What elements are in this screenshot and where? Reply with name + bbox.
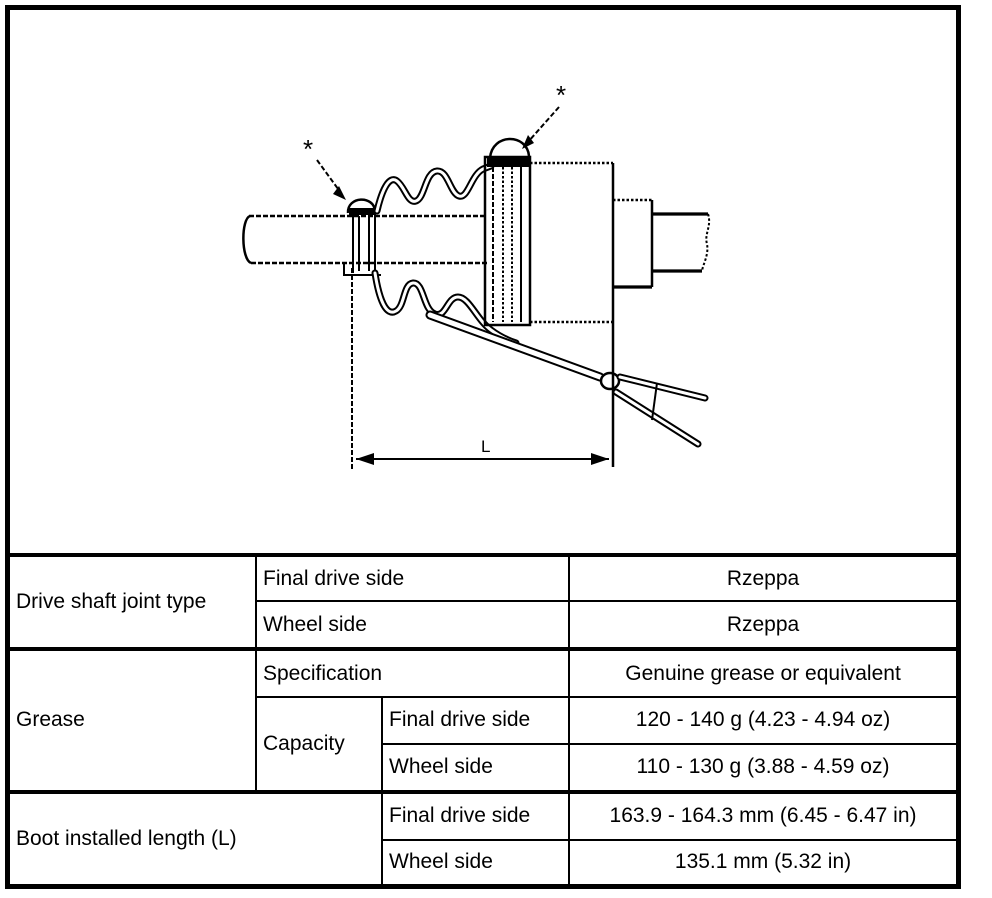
- drive-shaft-boot-illustration: * * L: [10, 10, 956, 553]
- boot-band-tool: [430, 315, 705, 444]
- boot-large-end: [485, 157, 530, 325]
- boot-upper-bellows: [377, 166, 491, 211]
- table-row: Drive shaft joint type Final drive side …: [10, 557, 956, 601]
- axle-shaft: [243, 216, 487, 263]
- drive-shaft-diagram: * * L: [10, 10, 956, 553]
- boot-lower-bellows: [375, 273, 516, 343]
- boot-length-wheel-value: 135.1 mm (5.32 in): [569, 840, 956, 885]
- asterisk-marker-left: *: [303, 134, 313, 164]
- spec-table-area: Drive shaft joint type Final drive side …: [10, 553, 956, 884]
- grease-specification-value: Genuine grease or equivalent: [569, 649, 956, 697]
- grease-label: Grease: [10, 649, 256, 791]
- dimension-arrow-left: [356, 453, 374, 465]
- joint-final-drive-label: Final drive side: [256, 557, 569, 601]
- joint-housing: [530, 163, 613, 322]
- spec-table: Drive shaft joint type Final drive side …: [10, 557, 956, 884]
- joint-wheel-label: Wheel side: [256, 601, 569, 649]
- boot-large-clamp: [487, 139, 530, 167]
- grease-capacity-label: Capacity: [256, 697, 382, 791]
- boot-length-final-label: Final drive side: [382, 792, 569, 840]
- boot-band-callout-right: *: [522, 80, 566, 149]
- joint-wheel-value: Rzeppa: [569, 601, 956, 649]
- dimension-arrow-right: [591, 453, 609, 465]
- dimension-label: L: [481, 437, 490, 456]
- grease-specification-label: Specification: [256, 649, 569, 697]
- grease-capacity-final-label: Final drive side: [382, 697, 569, 743]
- grease-capacity-final-value: 120 - 140 g (4.23 - 4.94 oz): [569, 697, 956, 743]
- asterisk-marker-right: *: [556, 80, 566, 110]
- page-frame: * * L: [5, 5, 961, 889]
- boot-length-wheel-label: Wheel side: [382, 840, 569, 885]
- boot-length-final-value: 163.9 - 164.3 mm (6.45 - 6.47 in): [569, 792, 956, 840]
- grease-capacity-wheel-value: 110 - 130 g (3.88 - 4.59 oz): [569, 744, 956, 792]
- joint-final-drive-value: Rzeppa: [569, 557, 956, 601]
- arrowhead-left: [333, 186, 346, 200]
- table-row: Grease Specification Genuine grease or e…: [10, 649, 956, 697]
- table-row: Boot installed length (L) Final drive si…: [10, 792, 956, 840]
- grease-capacity-wheel-label: Wheel side: [382, 744, 569, 792]
- boot-length-label: Boot installed length (L): [10, 792, 382, 884]
- joint-type-label: Drive shaft joint type: [10, 557, 256, 649]
- boot-band-callout-left: *: [303, 134, 346, 200]
- stub-shaft: [613, 200, 709, 287]
